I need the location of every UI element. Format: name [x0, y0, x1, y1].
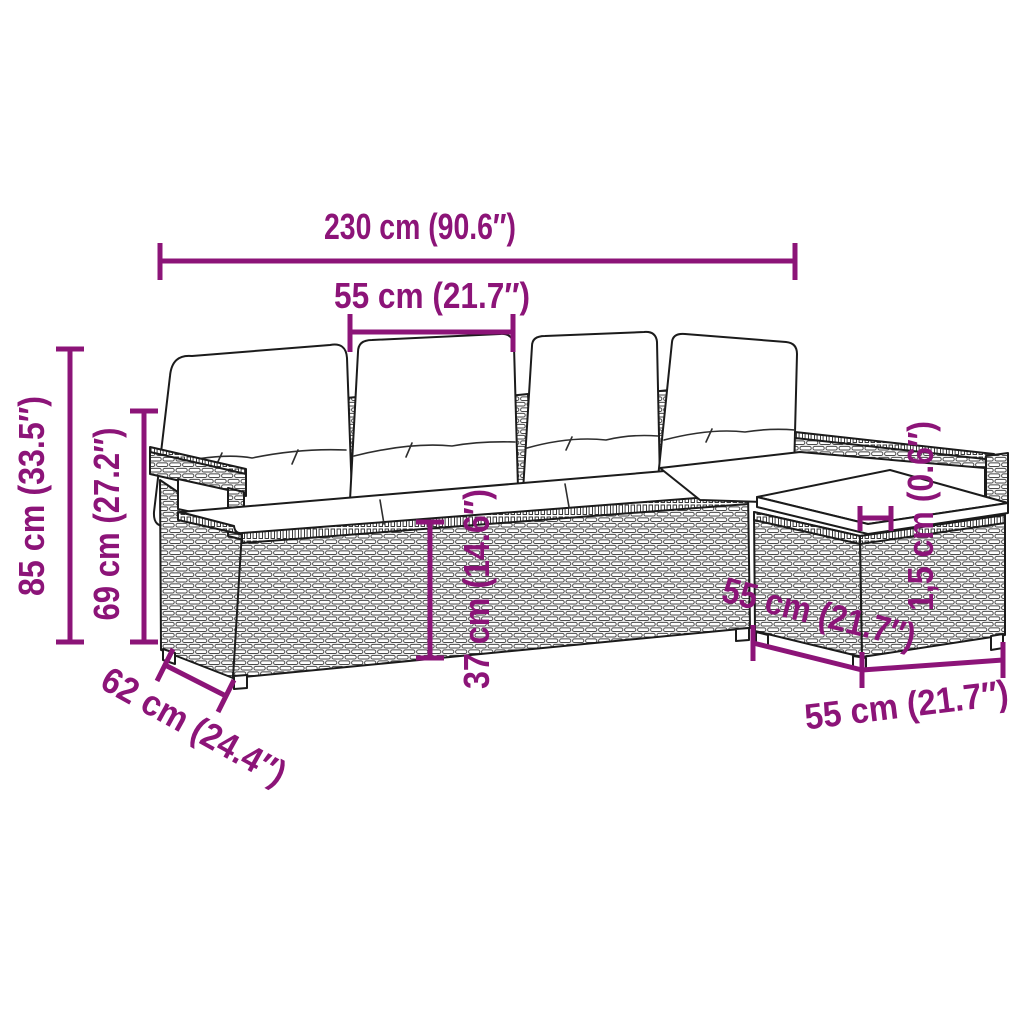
dim-backrest-height: 69 cm (27.2″)	[86, 411, 158, 642]
dim-stool-width-label: 55 cm (21.7″)	[802, 672, 1010, 738]
dim-overall-width-label: 230 cm (90.6″)	[324, 206, 516, 247]
dim-overall-width: 230 cm (90.6″)	[160, 206, 795, 280]
dim-overall-height: 85 cm (33.5″)	[11, 349, 84, 642]
dim-seat-width-label: 55 cm (21.7″)	[334, 275, 530, 316]
dim-base-height-label: 37 cm (14.6″)	[456, 489, 497, 689]
dim-stool-width: 55 cm (21.7″)	[802, 642, 1010, 737]
dim-backrest-height-label: 69 cm (27.2″)	[86, 428, 127, 621]
back-cushion-2	[350, 334, 518, 510]
dimension-diagram: 230 cm (90.6″) 55 cm (21.7″) 85 cm (33.5…	[0, 0, 1024, 1024]
dim-cushion-thickness-label: 1,5 cm (0.6″)	[900, 421, 941, 611]
dim-overall-height-label: 85 cm (33.5″)	[11, 396, 52, 596]
